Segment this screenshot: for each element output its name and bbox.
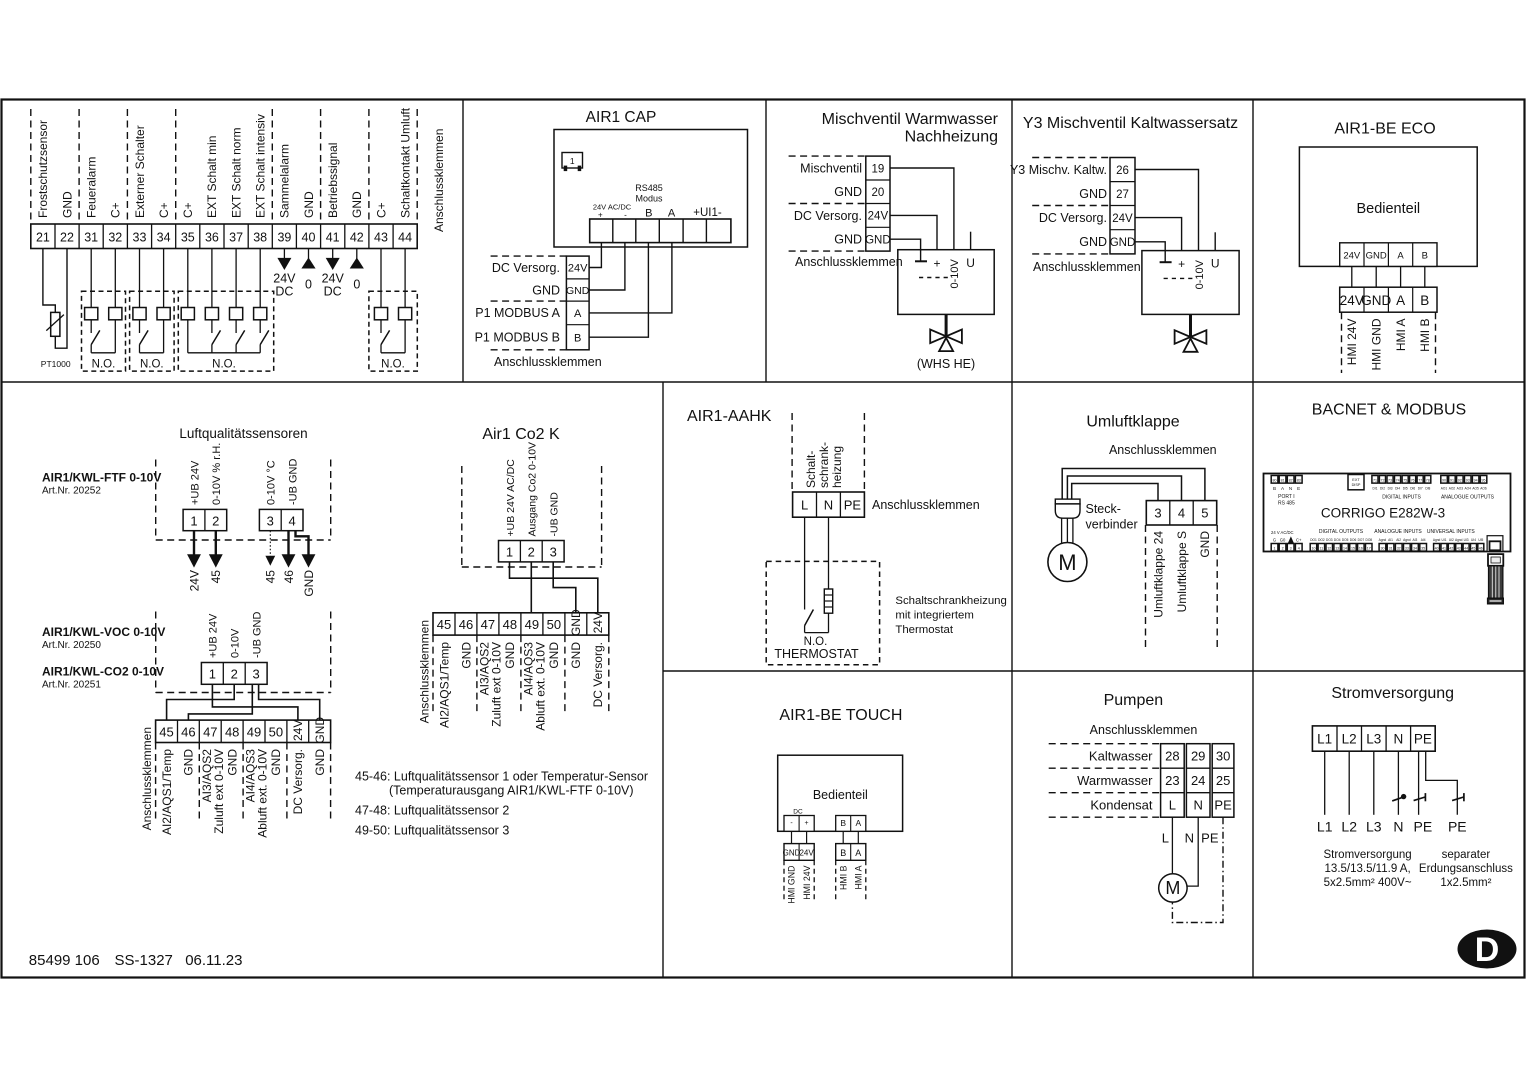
svg-text:HMI B: HMI B bbox=[1418, 319, 1432, 352]
svg-text:Kaltwasser: Kaltwasser bbox=[1089, 749, 1153, 764]
svg-text:82: 82 bbox=[1289, 478, 1293, 482]
svg-text:N: N bbox=[1194, 798, 1203, 813]
svg-text:Umluftklappe S: Umluftklappe S bbox=[1175, 531, 1189, 612]
svg-text:49-50: Luftqualitätssensor 3: 49-50: Luftqualitätssensor 3 bbox=[355, 824, 509, 838]
svg-text:Bedienteil: Bedienteil bbox=[1356, 201, 1420, 217]
svg-text:Kondensat: Kondensat bbox=[1090, 798, 1153, 813]
svg-text:25: 25 bbox=[1216, 773, 1230, 788]
svg-text:17: 17 bbox=[1367, 546, 1371, 550]
svg-text:Art.Nr. 20252: Art.Nr. 20252 bbox=[42, 486, 101, 497]
svg-text:46: 46 bbox=[459, 617, 473, 632]
svg-text:Steck-: Steck- bbox=[1086, 502, 1121, 516]
svg-text:24V: 24V bbox=[273, 271, 296, 285]
svg-text:Nachheizung: Nachheizung bbox=[905, 129, 998, 146]
svg-text:5: 5 bbox=[1201, 506, 1208, 521]
svg-text:PE: PE bbox=[1448, 819, 1467, 835]
svg-text:A: A bbox=[1397, 251, 1404, 262]
svg-text:B: B bbox=[645, 207, 652, 219]
svg-text:1: 1 bbox=[1274, 546, 1276, 550]
svg-text:GND: GND bbox=[783, 849, 801, 858]
svg-text:23: 23 bbox=[1165, 773, 1179, 788]
svg-text:AIR1-BE TOUCH: AIR1-BE TOUCH bbox=[779, 707, 902, 724]
svg-text:11: 11 bbox=[1320, 546, 1324, 550]
svg-text:AO6: AO6 bbox=[1480, 487, 1487, 491]
svg-text:47: 47 bbox=[481, 617, 495, 632]
svg-text:DC: DC bbox=[793, 809, 803, 816]
svg-text:41: 41 bbox=[1442, 546, 1446, 550]
svg-text:A: A bbox=[1396, 293, 1405, 308]
svg-text:DC Versorg.: DC Versorg. bbox=[492, 261, 560, 275]
svg-text:AI4: AI4 bbox=[1421, 538, 1426, 542]
svg-text:AI2: AI2 bbox=[1396, 538, 1401, 542]
svg-text:DI4: DI4 bbox=[1395, 487, 1400, 491]
svg-text:P1 MODBUS B: P1 MODBUS B bbox=[475, 331, 560, 345]
svg-text:24V: 24V bbox=[799, 849, 814, 858]
svg-text:C+: C+ bbox=[109, 202, 123, 218]
svg-text:DI1: DI1 bbox=[1373, 487, 1378, 491]
svg-text:85499 106: 85499 106 bbox=[29, 952, 100, 969]
svg-text:30: 30 bbox=[1216, 749, 1230, 764]
svg-text:G: G bbox=[1273, 538, 1276, 543]
svg-text:GND: GND bbox=[834, 185, 862, 199]
svg-text:Anschlussklemmen: Anschlussklemmen bbox=[872, 498, 980, 512]
svg-text:L3: L3 bbox=[1366, 819, 1382, 835]
svg-text:N: N bbox=[1394, 731, 1404, 746]
svg-text:DIGITAL INPUTS: DIGITAL INPUTS bbox=[1382, 495, 1421, 501]
svg-text:-: - bbox=[624, 210, 627, 219]
svg-text:3: 3 bbox=[550, 544, 557, 559]
svg-text:Agnd: Agnd bbox=[1455, 538, 1463, 542]
svg-text:E: E bbox=[1297, 486, 1300, 491]
svg-text:35: 35 bbox=[1421, 546, 1425, 550]
svg-text:+: + bbox=[1178, 257, 1185, 271]
svg-text:0: 0 bbox=[305, 277, 312, 291]
svg-text:DO1: DO1 bbox=[1310, 538, 1317, 542]
svg-text:37: 37 bbox=[229, 231, 243, 245]
svg-text:C+: C+ bbox=[157, 202, 171, 218]
svg-text:DC Versorg.: DC Versorg. bbox=[1039, 211, 1107, 225]
svg-text:mit integriertem: mit integriertem bbox=[895, 610, 974, 622]
svg-text:GND: GND bbox=[1366, 251, 1387, 262]
svg-text:46: 46 bbox=[1479, 546, 1483, 550]
svg-text:DC Versorg.: DC Versorg. bbox=[794, 209, 862, 223]
svg-text:UI1: UI1 bbox=[1442, 538, 1447, 542]
svg-text:46: 46 bbox=[282, 570, 296, 584]
svg-text:24V: 24V bbox=[1112, 213, 1133, 225]
svg-text:Bedienteil: Bedienteil bbox=[813, 788, 868, 802]
svg-text:HMI A: HMI A bbox=[854, 865, 864, 889]
svg-text:1: 1 bbox=[506, 544, 513, 559]
svg-text:GND: GND bbox=[569, 642, 583, 669]
svg-text:3: 3 bbox=[1154, 506, 1161, 521]
svg-text:C+: C+ bbox=[374, 202, 388, 218]
svg-text:31: 31 bbox=[84, 231, 98, 245]
svg-text:+UB 24V: +UB 24V bbox=[208, 613, 220, 658]
svg-text:24V: 24V bbox=[291, 720, 305, 741]
svg-text:DISP: DISP bbox=[1352, 483, 1361, 487]
svg-text:DO3: DO3 bbox=[1326, 538, 1333, 542]
svg-text:32: 32 bbox=[1397, 546, 1401, 550]
svg-text:EXT Schalt intensiv: EXT Schalt intensiv bbox=[254, 114, 268, 218]
svg-text:45: 45 bbox=[437, 617, 451, 632]
svg-text:24V: 24V bbox=[591, 612, 605, 633]
svg-text:47-48: Luftqualitätssensor 2: 47-48: Luftqualitätssensor 2 bbox=[355, 804, 509, 818]
svg-text:19: 19 bbox=[872, 163, 885, 175]
svg-text:Anschlussklemmen: Anschlussklemmen bbox=[795, 255, 903, 269]
svg-text:49: 49 bbox=[247, 725, 261, 740]
svg-text:UI2: UI2 bbox=[1449, 538, 1454, 542]
svg-text:Warmwasser: Warmwasser bbox=[1077, 773, 1153, 788]
svg-text:Mischventil: Mischventil bbox=[800, 162, 862, 176]
svg-text:Betriebssignal: Betriebssignal bbox=[326, 143, 340, 218]
svg-text:G0: G0 bbox=[1280, 538, 1286, 543]
svg-text:GND: GND bbox=[547, 642, 561, 669]
svg-text:0: 0 bbox=[353, 277, 360, 291]
svg-text:40: 40 bbox=[1435, 546, 1439, 550]
svg-text:28: 28 bbox=[1165, 749, 1179, 764]
svg-text:06.11.23: 06.11.23 bbox=[185, 952, 242, 969]
svg-text:Anschlussklemmen: Anschlussklemmen bbox=[1109, 443, 1217, 457]
svg-text:A: A bbox=[668, 207, 676, 219]
svg-text:AI2/AQS1/Temp: AI2/AQS1/Temp bbox=[160, 749, 174, 835]
svg-text:3: 3 bbox=[252, 667, 259, 682]
svg-text:13: 13 bbox=[1335, 546, 1339, 550]
svg-text:49: 49 bbox=[525, 617, 539, 632]
svg-text:Modus: Modus bbox=[635, 194, 663, 204]
svg-text:0-10V % r.H.: 0-10V % r.H. bbox=[211, 443, 223, 505]
svg-text:24V: 24V bbox=[187, 570, 201, 591]
svg-text:21: 21 bbox=[36, 231, 50, 245]
svg-text:CORRIGO E282W-3: CORRIGO E282W-3 bbox=[1321, 506, 1445, 521]
svg-text:24V: 24V bbox=[868, 211, 889, 223]
svg-text:78: 78 bbox=[1426, 478, 1430, 482]
svg-text:GND: GND bbox=[350, 191, 364, 218]
svg-text:HMI 24V: HMI 24V bbox=[1345, 319, 1359, 366]
svg-text:Umluftklappe 24: Umluftklappe 24 bbox=[1151, 531, 1165, 618]
svg-text:Pumpen: Pumpen bbox=[1104, 692, 1164, 709]
svg-text:48: 48 bbox=[225, 725, 239, 740]
svg-text:GND: GND bbox=[532, 283, 560, 297]
svg-text:GND: GND bbox=[566, 285, 590, 297]
svg-text:Frostschutzsensor: Frostschutzsensor bbox=[36, 120, 50, 218]
svg-text:L1: L1 bbox=[1317, 731, 1332, 746]
svg-text:PT1000: PT1000 bbox=[41, 359, 71, 369]
svg-text:verbinder: verbinder bbox=[1086, 518, 1138, 532]
svg-text:83: 83 bbox=[1297, 478, 1301, 482]
svg-text:DI2: DI2 bbox=[1380, 487, 1385, 491]
svg-text:M: M bbox=[1058, 550, 1076, 575]
svg-text:Abluft ext. 0-10V: Abluft ext. 0-10V bbox=[256, 749, 270, 838]
svg-text:GND: GND bbox=[1079, 187, 1107, 201]
svg-text:Thermostat: Thermostat bbox=[895, 624, 953, 636]
svg-text:PORT I: PORT I bbox=[1278, 494, 1295, 500]
svg-text:42: 42 bbox=[350, 231, 364, 245]
svg-text:48: 48 bbox=[503, 617, 517, 632]
svg-text:Stromversorgung: Stromversorgung bbox=[1323, 849, 1411, 861]
svg-text:HMI 24V: HMI 24V bbox=[802, 865, 812, 899]
svg-text:AIR1 CAP: AIR1 CAP bbox=[586, 109, 657, 126]
svg-text:EXT Schalt norm: EXT Schalt norm bbox=[229, 128, 243, 218]
svg-text:Zuluft ext 0-10V: Zuluft ext 0-10V bbox=[489, 642, 503, 727]
svg-text:13.5/13.5/11.9 A,: 13.5/13.5/11.9 A, bbox=[1325, 863, 1411, 875]
svg-text:40: 40 bbox=[302, 231, 316, 245]
svg-text:91: 91 bbox=[1450, 478, 1454, 482]
svg-text:L3: L3 bbox=[1366, 731, 1381, 746]
svg-text:47: 47 bbox=[203, 725, 217, 740]
svg-text:AIR1/KWL-CO2 0-10V: AIR1/KWL-CO2 0-10V bbox=[42, 665, 164, 679]
svg-text:ANALOGUE OUTPUTS: ANALOGUE OUTPUTS bbox=[1441, 495, 1495, 501]
svg-text:AI2/AQS1/Temp: AI2/AQS1/Temp bbox=[437, 642, 451, 728]
svg-text:16: 16 bbox=[1359, 546, 1363, 550]
svg-text:AO5: AO5 bbox=[1472, 487, 1479, 491]
svg-text:UNIVERSAL INPUTS: UNIVERSAL INPUTS bbox=[1427, 529, 1476, 535]
svg-text:C+: C+ bbox=[181, 202, 195, 218]
svg-text:DO4: DO4 bbox=[1334, 538, 1341, 542]
svg-text:L: L bbox=[1162, 831, 1169, 846]
svg-text:42: 42 bbox=[1449, 546, 1453, 550]
svg-text:38: 38 bbox=[253, 231, 267, 245]
svg-text:GND: GND bbox=[1079, 235, 1107, 249]
svg-text:L: L bbox=[1169, 798, 1176, 813]
svg-text:AIR1-BE ECO: AIR1-BE ECO bbox=[1334, 121, 1435, 138]
svg-text:Stromversorgung: Stromversorgung bbox=[1331, 685, 1454, 702]
svg-text:GND: GND bbox=[1361, 293, 1391, 308]
svg-text:24V: 24V bbox=[568, 263, 588, 275]
svg-text:GND: GND bbox=[269, 749, 283, 776]
svg-text:GND: GND bbox=[865, 235, 891, 247]
svg-text:29: 29 bbox=[1191, 749, 1205, 764]
svg-text:AO1: AO1 bbox=[1441, 487, 1448, 491]
svg-text:1x2.5mm²: 1x2.5mm² bbox=[1440, 877, 1491, 889]
svg-text:B: B bbox=[840, 848, 846, 858]
svg-text:DC Versorg.: DC Versorg. bbox=[591, 642, 605, 707]
svg-text:GND: GND bbox=[302, 191, 316, 218]
svg-text:43: 43 bbox=[374, 231, 388, 245]
svg-text:92: 92 bbox=[1458, 478, 1462, 482]
svg-text:4: 4 bbox=[1298, 546, 1300, 550]
svg-text:GND: GND bbox=[302, 570, 316, 597]
svg-text:DC Versorg.: DC Versorg. bbox=[291, 749, 305, 814]
svg-text:1: 1 bbox=[570, 156, 575, 166]
svg-text:-UB GND: -UB GND bbox=[287, 459, 299, 506]
svg-text:Luftqualitätssensoren: Luftqualitätssensoren bbox=[179, 426, 307, 441]
svg-text:2: 2 bbox=[231, 667, 238, 682]
svg-text:AO2: AO2 bbox=[1449, 487, 1456, 491]
svg-text:73: 73 bbox=[1388, 478, 1392, 482]
svg-text:HMI B: HMI B bbox=[838, 865, 848, 890]
svg-text:DI8: DI8 bbox=[1425, 487, 1430, 491]
svg-text:N: N bbox=[824, 498, 833, 513]
svg-text:75: 75 bbox=[1403, 478, 1407, 482]
svg-text:(WHS HE): (WHS HE) bbox=[917, 357, 975, 371]
svg-text:AI3: AI3 bbox=[1413, 538, 1418, 542]
svg-text:AI1: AI1 bbox=[1388, 538, 1393, 542]
svg-text:M: M bbox=[1165, 878, 1180, 898]
svg-text:N.O.: N.O. bbox=[140, 359, 164, 371]
svg-text:44: 44 bbox=[398, 231, 412, 245]
svg-text:B: B bbox=[574, 332, 581, 344]
svg-text:U: U bbox=[966, 256, 975, 270]
svg-text:AO3: AO3 bbox=[1457, 487, 1464, 491]
svg-text:P1 MODBUS A: P1 MODBUS A bbox=[475, 306, 560, 320]
svg-text:22: 22 bbox=[60, 231, 74, 245]
svg-text:94: 94 bbox=[1474, 478, 1478, 482]
svg-text:B: B bbox=[1420, 293, 1429, 308]
svg-text:45: 45 bbox=[209, 570, 223, 584]
svg-text:45-46: Luftqualitätssensor 1 o: 45-46: Luftqualitätssensor 1 oder Temper… bbox=[355, 770, 648, 784]
svg-text:0-10V: 0-10V bbox=[1194, 259, 1206, 289]
svg-text:AO4: AO4 bbox=[1465, 487, 1472, 491]
svg-text:24V: 24V bbox=[322, 271, 345, 285]
svg-text:35: 35 bbox=[181, 231, 195, 245]
svg-text:DI5: DI5 bbox=[1403, 487, 1408, 491]
svg-text:1: 1 bbox=[209, 667, 216, 682]
svg-text:DO8: DO8 bbox=[1366, 538, 1373, 542]
svg-text:43: 43 bbox=[1457, 546, 1461, 550]
svg-text:HMI A: HMI A bbox=[1394, 319, 1408, 352]
svg-text:39: 39 bbox=[277, 231, 291, 245]
svg-text:72: 72 bbox=[1381, 478, 1385, 482]
svg-text:Schaltschrankheizung: Schaltschrankheizung bbox=[895, 595, 1006, 607]
svg-text:Schalt-: Schalt- bbox=[804, 451, 818, 488]
svg-text:N.O.: N.O. bbox=[381, 359, 405, 371]
svg-text:45: 45 bbox=[264, 570, 278, 584]
svg-text:Anschlussklemmen: Anschlussklemmen bbox=[1090, 723, 1198, 737]
svg-text:A: A bbox=[574, 308, 582, 320]
svg-text:L2: L2 bbox=[1342, 731, 1357, 746]
svg-text:46: 46 bbox=[181, 725, 195, 740]
svg-text:Art.Nr. 20251: Art.Nr. 20251 bbox=[42, 680, 101, 691]
svg-text:4: 4 bbox=[1178, 506, 1185, 521]
svg-text:Ausgang Co2 0-10V: Ausgang Co2 0-10V bbox=[527, 442, 539, 537]
svg-text:95: 95 bbox=[1482, 478, 1486, 482]
svg-text:32: 32 bbox=[108, 231, 122, 245]
svg-text:PE: PE bbox=[1414, 731, 1432, 746]
svg-text:A: A bbox=[855, 848, 861, 858]
svg-text:RS485: RS485 bbox=[635, 183, 663, 193]
svg-text:DO7: DO7 bbox=[1358, 538, 1365, 542]
svg-text:ANALOGUE INPUTS: ANALOGUE INPUTS bbox=[1374, 529, 1422, 535]
svg-text:AIR1/KWL-VOC 0-10V: AIR1/KWL-VOC 0-10V bbox=[42, 625, 165, 639]
svg-text:DC: DC bbox=[275, 285, 293, 299]
svg-text:N.O.: N.O. bbox=[92, 359, 116, 371]
svg-text:GND: GND bbox=[313, 717, 327, 744]
svg-text:15: 15 bbox=[1351, 546, 1355, 550]
svg-text:41: 41 bbox=[326, 231, 340, 245]
svg-text:24V: 24V bbox=[1343, 251, 1361, 262]
svg-text:UI3: UI3 bbox=[1464, 538, 1469, 542]
svg-text:71: 71 bbox=[1373, 478, 1377, 482]
svg-text:L1: L1 bbox=[1317, 819, 1333, 835]
svg-text:50: 50 bbox=[547, 617, 561, 632]
svg-text:GND: GND bbox=[226, 749, 240, 776]
svg-text:1: 1 bbox=[190, 513, 197, 528]
svg-text:RS 485: RS 485 bbox=[1278, 501, 1295, 507]
svg-text:N: N bbox=[1289, 486, 1292, 491]
svg-text:THERMOSTAT: THERMOSTAT bbox=[774, 647, 859, 661]
svg-text:Anschlussklemmen: Anschlussklemmen bbox=[1033, 260, 1141, 274]
svg-text:D: D bbox=[1475, 931, 1500, 969]
svg-text:Anschlussklemmen: Anschlussklemmen bbox=[140, 727, 154, 830]
svg-text:76: 76 bbox=[1411, 478, 1415, 482]
svg-text:Anschlussklemmen: Anschlussklemmen bbox=[494, 355, 602, 369]
svg-text:Anschlussklemmen: Anschlussklemmen bbox=[418, 620, 432, 723]
svg-text:5x2.5mm² 400V~: 5x2.5mm² 400V~ bbox=[1324, 877, 1412, 889]
svg-text:Sammelalarm: Sammelalarm bbox=[278, 144, 292, 218]
svg-text:L2: L2 bbox=[1341, 819, 1357, 835]
svg-text:DO6: DO6 bbox=[1350, 538, 1357, 542]
svg-text:GND: GND bbox=[60, 191, 74, 218]
svg-text:30: 30 bbox=[1381, 546, 1385, 550]
svg-text:Air1 Co2 K: Air1 Co2 K bbox=[482, 426, 560, 443]
svg-text:93: 93 bbox=[1466, 478, 1470, 482]
svg-text:-UB GND: -UB GND bbox=[549, 492, 561, 537]
svg-text:33: 33 bbox=[133, 231, 147, 245]
svg-text:B: B bbox=[1422, 251, 1428, 262]
svg-text:GND: GND bbox=[834, 233, 862, 247]
svg-text:+UB 24V: +UB 24V bbox=[189, 460, 201, 505]
svg-text:DI3: DI3 bbox=[1388, 487, 1393, 491]
svg-text:36: 36 bbox=[205, 231, 219, 245]
svg-text:26: 26 bbox=[1116, 165, 1129, 177]
svg-text:14: 14 bbox=[1343, 546, 1347, 550]
svg-text:45: 45 bbox=[1471, 546, 1475, 550]
svg-text:B: B bbox=[1273, 486, 1276, 491]
svg-text:N.O.: N.O. bbox=[212, 359, 236, 371]
svg-text:+: + bbox=[598, 210, 603, 219]
svg-text:Y3 Mischventil Kaltwassersatz: Y3 Mischventil Kaltwassersatz bbox=[1023, 115, 1238, 132]
svg-text:0-10V: 0-10V bbox=[949, 258, 961, 288]
svg-text:Feueralarm: Feueralarm bbox=[85, 157, 99, 218]
svg-text:Agnd: Agnd bbox=[1379, 538, 1387, 542]
svg-text:Anschlussklemmen: Anschlussklemmen bbox=[432, 129, 446, 232]
svg-text:34: 34 bbox=[157, 231, 171, 245]
svg-text:(Temperaturausgang AIR1/KWL-FT: (Temperaturausgang AIR1/KWL-FTF 0-10V) bbox=[389, 784, 634, 798]
svg-text:50: 50 bbox=[269, 725, 283, 740]
svg-text:separater: separater bbox=[1442, 849, 1491, 861]
svg-text:0-10V °C: 0-10V °C bbox=[266, 460, 278, 505]
svg-text:PE: PE bbox=[1414, 819, 1433, 835]
svg-text:4: 4 bbox=[288, 513, 295, 528]
svg-text:N: N bbox=[1393, 819, 1403, 835]
svg-text:EXT Schalt min: EXT Schalt min bbox=[205, 136, 219, 218]
svg-text:20: 20 bbox=[872, 187, 885, 199]
svg-text:12: 12 bbox=[1327, 546, 1331, 550]
svg-text:+UB 24V AC/DC: +UB 24V AC/DC bbox=[505, 459, 517, 537]
svg-text:PE: PE bbox=[844, 498, 862, 513]
svg-text:24: 24 bbox=[1191, 773, 1205, 788]
svg-text:33: 33 bbox=[1405, 546, 1409, 550]
svg-text:81: 81 bbox=[1281, 478, 1285, 482]
svg-text:10: 10 bbox=[1312, 546, 1316, 550]
svg-text:PE: PE bbox=[1214, 798, 1232, 813]
svg-text:DO2: DO2 bbox=[1318, 538, 1325, 542]
svg-text:-UB GND: -UB GND bbox=[251, 612, 263, 659]
svg-text:Mischventil Warmwasser: Mischventil Warmwasser bbox=[822, 111, 999, 128]
svg-text:GND: GND bbox=[313, 749, 327, 776]
svg-text:45: 45 bbox=[159, 725, 173, 740]
svg-text:Erdungsanschluss: Erdungsanschluss bbox=[1419, 863, 1513, 875]
svg-text:GND: GND bbox=[1198, 531, 1212, 558]
svg-text:0-10V: 0-10V bbox=[230, 628, 242, 658]
svg-text:GND: GND bbox=[1110, 237, 1136, 249]
svg-text:Y3 Mischv. Kaltw.: Y3 Mischv. Kaltw. bbox=[1010, 163, 1107, 177]
svg-text:3: 3 bbox=[267, 513, 274, 528]
svg-text:2: 2 bbox=[1282, 546, 1284, 550]
svg-text:DO5: DO5 bbox=[1342, 538, 1349, 542]
svg-text:90: 90 bbox=[1442, 478, 1446, 482]
svg-text:24 V AC/DC: 24 V AC/DC bbox=[1271, 530, 1294, 535]
